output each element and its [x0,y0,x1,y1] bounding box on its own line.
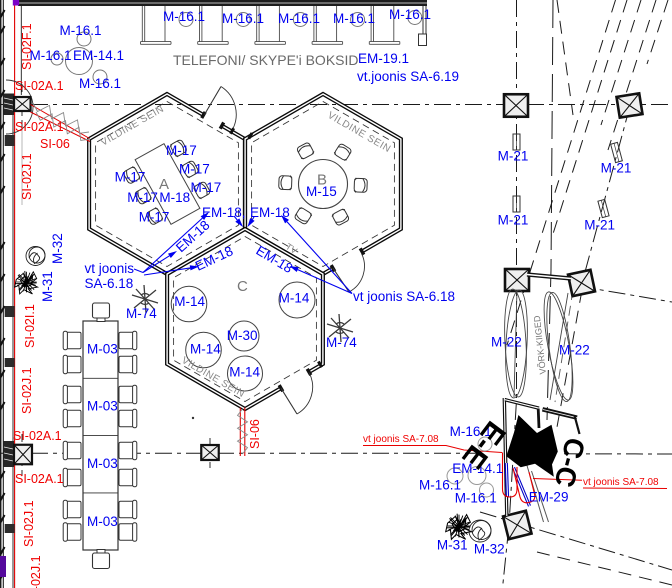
svg-text:M-16.1: M-16.1 [79,76,121,91]
svg-text:M-16.1: M-16.1 [455,491,497,506]
svg-text:M-30: M-30 [227,328,258,343]
svg-text:M-17: M-17 [166,143,197,158]
svg-text:EM-19.1: EM-19.1 [358,51,409,66]
svg-text:SI-02F.1: SI-02F.1 [20,23,34,70]
svg-text:M-14: M-14 [279,291,310,306]
svg-text:M-17: M-17 [179,162,210,177]
svg-text:SI-02J.1: SI-02J.1 [20,153,34,200]
svg-text:SI-06: SI-06 [40,137,70,151]
svg-text:vt joonis SA-7.08: vt joonis SA-7.08 [363,434,439,445]
svg-text:SI-02A.1: SI-02A.1 [15,79,64,93]
svg-text:M-16.1: M-16.1 [333,11,375,26]
svg-text:M-17: M-17 [115,170,146,185]
svg-text:M-74: M-74 [326,335,357,350]
svg-text:M-16.1: M-16.1 [389,7,431,22]
svg-text:M-21: M-21 [498,213,529,228]
svg-text:M-15: M-15 [306,184,337,199]
svg-text:SI-02I.1: SI-02I.1 [23,304,37,348]
svg-text:SI-02J.1: SI-02J.1 [22,500,36,547]
svg-text:vt joonis SA-7.08: vt joonis SA-7.08 [583,477,659,488]
svg-text:M-16.1: M-16.1 [222,11,264,26]
svg-text:SI-02A.1: SI-02A.1 [13,429,62,443]
svg-text:M-14: M-14 [190,342,221,357]
svg-text:SI-02A.1: SI-02A.1 [15,120,64,134]
svg-text:M-32: M-32 [474,542,505,557]
svg-text:M-31: M-31 [437,538,468,553]
svg-text:C: C [237,278,248,295]
svg-text:M-03: M-03 [87,514,118,529]
svg-text:M-21: M-21 [601,161,632,176]
svg-text:SA-6.18: SA-6.18 [85,276,134,291]
svg-text:M-31: M-31 [40,271,55,302]
svg-text:EM-14.1: EM-14.1 [73,48,124,63]
svg-text:M-32: M-32 [50,233,65,264]
svg-text:M-03: M-03 [87,456,118,471]
svg-text:M-03: M-03 [87,342,118,357]
svg-text:M-16.1: M-16.1 [278,11,320,26]
svg-text:M-74: M-74 [126,306,157,321]
svg-text:M-18: M-18 [159,190,190,205]
svg-text:SI-02A.1: SI-02A.1 [15,472,64,486]
svg-text:M-14: M-14 [174,294,205,309]
svg-text:SI-06: SI-06 [248,419,262,449]
svg-text:M-17: M-17 [127,190,158,205]
svg-text:M-17: M-17 [191,180,222,195]
svg-text:EM-18,: EM-18, [202,205,246,220]
svg-text:vt joonis: vt joonis [85,261,135,276]
svg-text:M-16.1: M-16.1 [163,9,205,24]
svg-text:EM-29: EM-29 [529,490,569,505]
svg-text:EM-18: EM-18 [250,205,290,220]
svg-text:M-21: M-21 [584,218,615,233]
svg-text:M-17: M-17 [139,210,170,225]
svg-text:M-22: M-22 [559,343,590,358]
svg-text:M-16.1: M-16.1 [30,48,72,63]
svg-text:vt joonis SA-6.18: vt joonis SA-6.18 [353,289,455,304]
svg-text:vt.joonis SA-6.19: vt.joonis SA-6.19 [357,69,459,84]
svg-text:M-03: M-03 [87,399,118,414]
svg-text:TELEFONI/ SKYPE'i BOKSID: TELEFONI/ SKYPE'i BOKSID [173,52,359,68]
svg-text:M-16.1: M-16.1 [60,23,102,38]
svg-text:SI-02J.1: SI-02J.1 [20,367,34,414]
svg-text:M-21: M-21 [498,149,529,164]
svg-text:M-22: M-22 [491,335,522,350]
svg-text:M-14: M-14 [229,365,260,380]
svg-text:SI-02J.1: SI-02J.1 [29,555,43,588]
